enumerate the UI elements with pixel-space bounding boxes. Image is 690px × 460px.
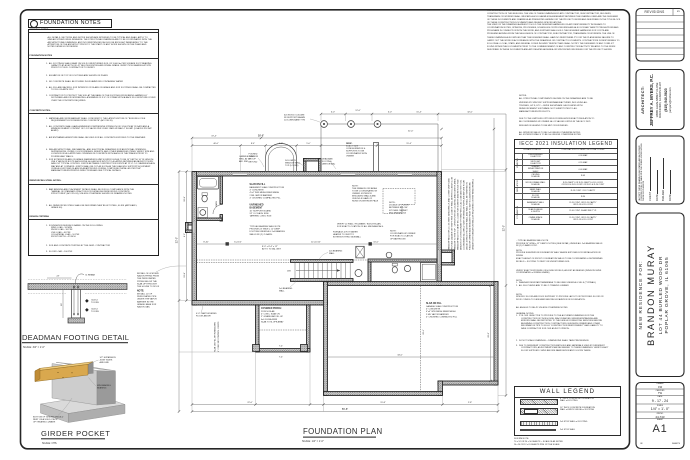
- svg-text:10'-0": 10'-0": [373, 242, 379, 244]
- svg-text:4" CRUSHED COMPACTED FILL: 4" CRUSHED COMPACTED FILL: [426, 315, 458, 318]
- svg-text:2x6 BEARING: 2x6 BEARING: [329, 250, 343, 253]
- svg-text:WINDOW TO THE TOP - OPEN POSIT: WINDOW TO THE TOP - OPEN POSITION LOCATI…: [454, 178, 457, 250]
- svg-text:6'-0": 6'-0": [331, 112, 335, 114]
- svg-text:RADON PIPING FROM: RADON PIPING FROM: [137, 275, 159, 278]
- svg-text:PERFORATED PIPE: PERFORATED PIPE: [137, 295, 157, 298]
- svg-text:BARRIER IN THE: BARRIER IN THE: [137, 300, 154, 303]
- svg-text:UNDER THE VAPOR: UNDER THE VAPOR: [137, 298, 157, 301]
- svg-text:32'-0": 32'-0": [503, 225, 506, 231]
- svg-text:4'-0" CANTILEVERED: 4'-0" CANTILEVERED: [196, 312, 217, 315]
- svg-text:5" GRANULAR FILL W/: 5" GRANULAR FILL W/: [261, 315, 283, 318]
- svg-text:15'-4": 15'-4": [416, 112, 422, 114]
- svg-text:FOR EXACT LOCATION OF ALL MECH: FOR EXACT LOCATION OF ALL MECHANICALS.: [337, 225, 384, 228]
- svg-text:HEATER TO VENT TO: HEATER TO VENT TO: [333, 233, 355, 236]
- svg-text:32'-0": 32'-0": [176, 237, 179, 243]
- svg-text:EXTERIOR THRU SIDEWALL: EXTERIOR THRU SIDEWALL: [333, 236, 362, 239]
- svg-text:22'-0": 22'-0": [247, 402, 253, 404]
- svg-text:REST ON A SOLID PIECE: REST ON A SOLID PIECE: [33, 418, 58, 421]
- svg-text:56'-8": 56'-8": [342, 408, 348, 411]
- svg-text:LEDGE & BRICK FROM THE WALL AN: LEDGE & BRICK FROM THE WALL AND WALL SHA…: [466, 182, 469, 250]
- svg-text:TO FRB: TO FRB: [91, 302, 99, 304]
- svg-text:THE HOUSE TO ROOF: THE HOUSE TO ROOF: [137, 286, 160, 288]
- svg-text:32'-0": 32'-0": [467, 112, 473, 114]
- svg-text:FLOOR ABOVE: FLOOR ABOVE: [196, 315, 211, 318]
- svg-text:8'-4": 8'-4": [251, 143, 255, 145]
- svg-text:RADON GAS.: RADON GAS.: [137, 306, 150, 309]
- svg-text:AFF. RIM: AFF. RIM: [239, 160, 248, 163]
- svg-text:20'-4": 20'-4": [423, 329, 425, 335]
- svg-text:GRADES AT FOUNDATION WALL AS R: GRADES AT FOUNDATION WALL AS REQUIRED ON…: [472, 178, 475, 250]
- svg-text:INSTALL 1/2 OF: INSTALL 1/2 OF: [137, 293, 153, 296]
- svg-text:16R: 16R: [287, 271, 291, 273]
- svg-text:20'-0": 20'-0": [488, 332, 490, 338]
- svg-text:12'-0": 12'-0": [355, 110, 361, 112]
- svg-text:SLAB ON FILL: SLAB ON FILL: [250, 183, 266, 186]
- svg-text:FOOTING UNDER ALL 2x6 BEARING: FOOTING UNDER ALL 2x6 BEARING: [250, 230, 286, 233]
- svg-text:1/2" EXPANSION: 1/2" EXPANSION: [100, 356, 117, 359]
- svg-text:SLAB ON FILL: SLAB ON FILL: [426, 302, 442, 305]
- svg-text:RUNS ON INTERIOR FACE: RUNS ON INTERIOR FACE: [352, 200, 379, 203]
- svg-text:FURNACE & HOT WATER: FURNACE & HOT WATER: [333, 231, 358, 234]
- svg-text:THE PERFORATED: THE PERFORATED: [137, 277, 156, 280]
- svg-text:5'-0": 5'-0": [306, 143, 310, 145]
- svg-text:TYPICAL BEARING WALL NOTE: TYPICAL BEARING WALL NOTE: [250, 225, 282, 228]
- svg-text:6'-4 1/2": 6'-4 1/2": [234, 242, 242, 244]
- svg-text:WALL: WALL: [329, 252, 335, 255]
- svg-text:2 MIL VAPOR BARRIER: 2 MIL VAPOR BARRIER: [250, 194, 273, 197]
- svg-text:KITCHEN CABINET: KITCHEN CABINET: [389, 209, 408, 212]
- svg-text:DEADMAN: DEADMAN: [322, 158, 333, 161]
- svg-text:AND END: AND END: [100, 361, 110, 364]
- svg-text:UNFINISHED: UNFINISHED: [250, 205, 264, 207]
- svg-text:24" O.C EACH SIDE: 24" O.C EACH SIDE: [250, 212, 270, 215]
- svg-text:SLAB UP THROUGH: SLAB UP THROUGH: [137, 282, 157, 285]
- svg-text:8'-10": 8'-10": [203, 242, 209, 244]
- svg-text:4" CRUSHED COMPACTED FILL: 4" CRUSHED COMPACTED FILL: [250, 196, 282, 199]
- svg-text:15'-4": 15'-4": [406, 143, 412, 145]
- svg-text:DEADMAN FOOTING DETAIL: DEADMAN FOOTING DETAIL: [22, 333, 129, 342]
- svg-text:WINDOW WELLS W/ 44 x 36 VERT.: WINDOW WELLS W/ 44 x 36 VERT. AREA WELLS…: [448, 178, 451, 250]
- svg-text:PROVIDE LADDER OR STEPS PER CO: PROVIDE LADDER OR STEPS PER CODE IF WELL…: [451, 176, 454, 250]
- svg-text:40'-0": 40'-0": [213, 143, 219, 145]
- svg-text:7'-4": 7'-4": [279, 357, 283, 359]
- svg-text:SCALE: NTS: SCALE: NTS: [42, 442, 57, 445]
- svg-text:WINDOW WELLS TO MEET IRC CODE: WINDOW WELLS TO MEET IRC CODE FOR EGRESS…: [457, 179, 460, 250]
- svg-text:VERIFY w/ HVAC / PLUMBER / ELE: VERIFY w/ HVAC / PLUMBER / ELECTRICIAN: [337, 223, 381, 226]
- svg-text:4" CONC W/ CONTROL JOINTS: 4" CONC W/ CONTROL JOINTS: [218, 321, 220, 352]
- svg-text:WALLS W/ (2) #5 BARS.: WALLS W/ (2) #5 BARS.: [250, 233, 273, 236]
- svg-text:GRAVEL BASE FOR: GRAVEL BASE FOR: [137, 303, 157, 306]
- svg-text:BEYOND: BEYOND: [249, 161, 258, 163]
- svg-text:PKG PENINSULA: PKG PENINSULA: [389, 211, 406, 214]
- svg-text:FIELD W/ OWNER AND BUILDER PRI: FIELD W/ OWNER AND BUILDER PRIOR TO ANY …: [469, 182, 472, 250]
- svg-text:4" CONC. SLAB ON: 4" CONC. SLAB ON: [261, 313, 280, 316]
- svg-text:MIN BEARING: MIN BEARING: [97, 384, 111, 387]
- svg-text:INSTALL OF 4CM SIZE: INSTALL OF 4CM SIZE: [137, 272, 159, 275]
- svg-text:13'-8": 13'-8": [184, 272, 186, 278]
- svg-text:6'-2": 6'-2": [184, 233, 186, 237]
- svg-text:58'-8": 58'-8": [258, 134, 264, 137]
- svg-text:(COLUMN BASE TYP): (COLUMN BASE TYP): [284, 119, 305, 122]
- svg-text:COORDINATE W/ OWNER: COORDINATE W/ OWNER: [390, 232, 416, 235]
- svg-text:COVERED PORCH: COVERED PORCH: [261, 308, 282, 310]
- svg-text:#4 REBAR: #4 REBAR: [85, 274, 96, 277]
- svg-text:NOTE:: NOTE:: [137, 291, 144, 293]
- svg-text:6'-8": 6'-8": [279, 143, 283, 145]
- svg-text:OF TREATED LUMBER: OF TREATED LUMBER: [33, 421, 56, 424]
- svg-text:10'-8": 10'-8": [184, 196, 186, 202]
- svg-text:24": 24": [56, 276, 59, 278]
- svg-text:TOP (LOOSE): TOP (LOOSE): [285, 165, 299, 167]
- svg-text:13'-8": 13'-8": [346, 143, 352, 145]
- svg-text:TO FRB: TO FRB: [91, 311, 99, 313]
- svg-text:2 MIL VAPOR BARRIER: 2 MIL VAPOR BARRIER: [426, 313, 449, 316]
- svg-text:SCALE: 3/4" = 1'-0": SCALE: 3/4" = 1'-0": [23, 346, 45, 349]
- svg-text:SLAB ON FILL W/ TURNDOWN: SLAB ON FILL W/ TURNDOWN: [214, 322, 217, 352]
- svg-text:FOUNDATION PLAN: FOUNDATION PLAN: [303, 427, 383, 436]
- svg-text:2'-8": 2'-8": [468, 402, 472, 404]
- svg-text:FOR EXACT LOCATION: FOR EXACT LOCATION: [390, 235, 413, 238]
- svg-text:10" SUPPORT BOARD: 10" SUPPORT BOARD: [250, 210, 272, 213]
- svg-text:COORDINATE ALL WELL SIZES W/ W: COORDINATE ALL WELL SIZES W/ WINDOW SUPP…: [463, 180, 466, 250]
- svg-text:34'-0": 34'-0": [397, 355, 403, 357]
- svg-text:12'-10 1/2": 12'-10 1/2": [311, 242, 321, 244]
- svg-text:(SEE DETAIL): (SEE DETAIL): [322, 163, 336, 166]
- svg-text:7'-4": 7'-4": [279, 346, 283, 348]
- svg-text:AV TO 75 GAL UNIT: AV TO 75 GAL UNIT: [262, 248, 282, 251]
- svg-text:DRAIN TO FOOTING DRAIN SYSTEM: DRAIN TO FOOTING DRAIN SYSTEM PER LOCAL …: [460, 179, 463, 250]
- svg-text:30": 30": [61, 303, 63, 306]
- svg-text:19'-4": 19'-4": [211, 135, 217, 137]
- svg-text:OF BATHROOM: OF BATHROOM: [390, 237, 406, 240]
- svg-text:OWNER: OWNER: [346, 156, 354, 158]
- svg-text:BEARING: BEARING: [97, 387, 107, 390]
- svg-text:GARAGE SLAB CONSTRUCTION: GARAGE SLAB CONSTRUCTION: [426, 305, 459, 308]
- svg-text:BATH: BATH: [215, 201, 218, 207]
- svg-text:6x6 10/10A WWF: 6x6 10/10A WWF: [261, 318, 278, 321]
- svg-text:WALL: WALL: [279, 290, 285, 293]
- svg-text:SCALE: 1/4" = 1'-0": SCALE: 1/4" = 1'-0": [302, 440, 324, 443]
- svg-text:15'-8": 15'-8": [380, 402, 386, 404]
- svg-text:SLAB TO SLOPE AWAY: SLAB TO SLOPE AWAY: [261, 320, 284, 323]
- svg-text:PORCH SLAB: PORCH SLAB: [261, 310, 275, 313]
- svg-text:BASEMENT: BASEMENT: [250, 207, 263, 210]
- svg-text:6'-0": 6'-0": [388, 112, 392, 114]
- svg-text:2x6 BEARING: 2x6 BEARING: [279, 287, 293, 290]
- svg-text:TAPERED LONG. RUN: TAPERED LONG. RUN: [250, 215, 272, 218]
- svg-text:52'-0": 52'-0": [408, 131, 414, 133]
- svg-text:BASEMENT SLAB CONSTRUCTION: BASEMENT SLAB CONSTRUCTION: [250, 186, 285, 189]
- svg-text:GIRDER POCKET: GIRDER POCKET: [41, 429, 110, 438]
